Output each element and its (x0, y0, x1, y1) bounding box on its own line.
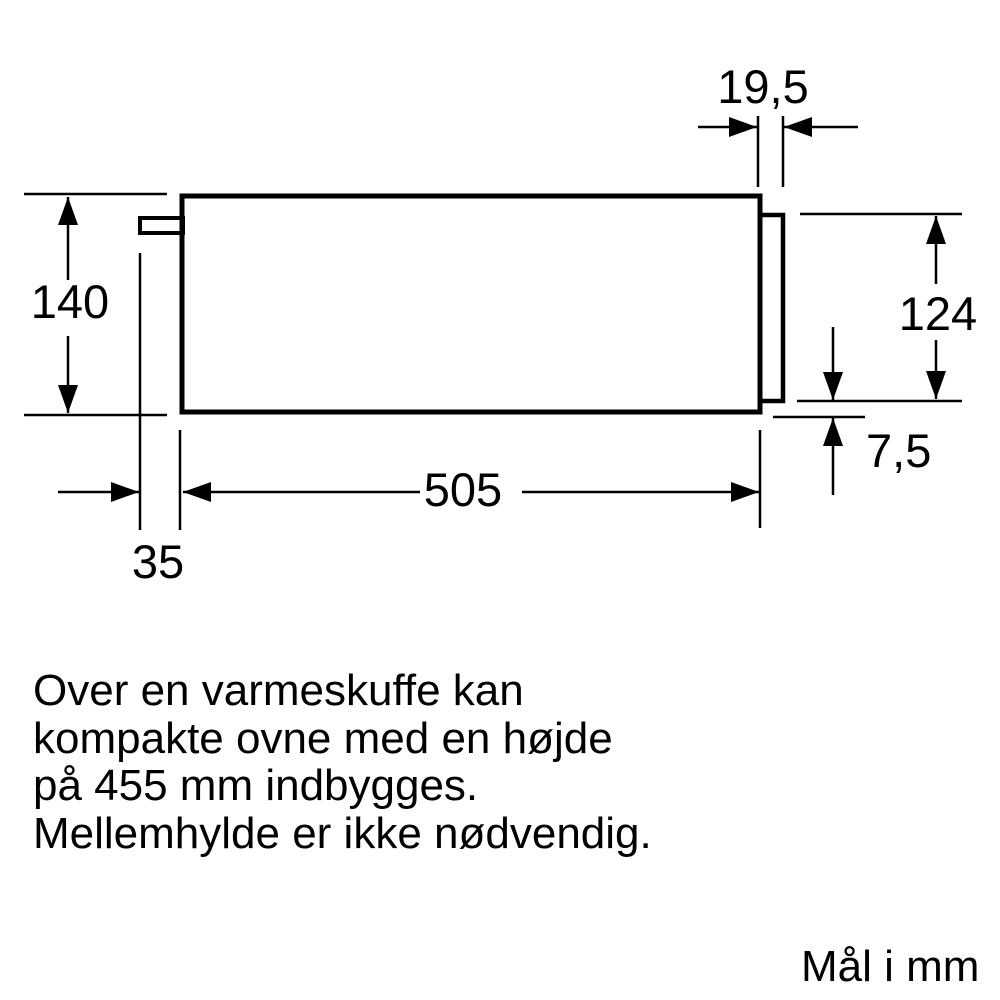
dim-label-35: 35 (132, 535, 184, 588)
appliance-dimension-drawing: 19,5 140 124 7,5 505 35 (0, 0, 1000, 630)
dim-label-505: 505 (424, 463, 502, 516)
appliance-body-outline (182, 196, 760, 412)
dim-label-19-5: 19,5 (717, 60, 808, 113)
dim-label-7-5: 7,5 (866, 424, 931, 477)
note-line-3: på 455 mm indbygges. (33, 762, 652, 810)
dim-label-124: 124 (899, 287, 977, 340)
installation-note: Over en varmeskuffe kan kompakte ovne me… (33, 667, 652, 857)
note-line-1: Over en varmeskuffe kan (33, 667, 652, 715)
units-label: Mål i mm (801, 942, 979, 992)
rear-rail-hook-outline (140, 218, 183, 233)
dimension-lines (58, 127, 936, 495)
note-line-2: kompakte ovne med en højde (33, 715, 652, 763)
dim-label-140: 140 (31, 275, 109, 328)
dimension-diagram-page: 19,5 140 124 7,5 505 35 Over en varmesku… (0, 0, 1000, 1000)
front-panel-outline (760, 215, 783, 401)
note-line-4: Mellemhylde er ikke nødvendig. (33, 810, 652, 858)
